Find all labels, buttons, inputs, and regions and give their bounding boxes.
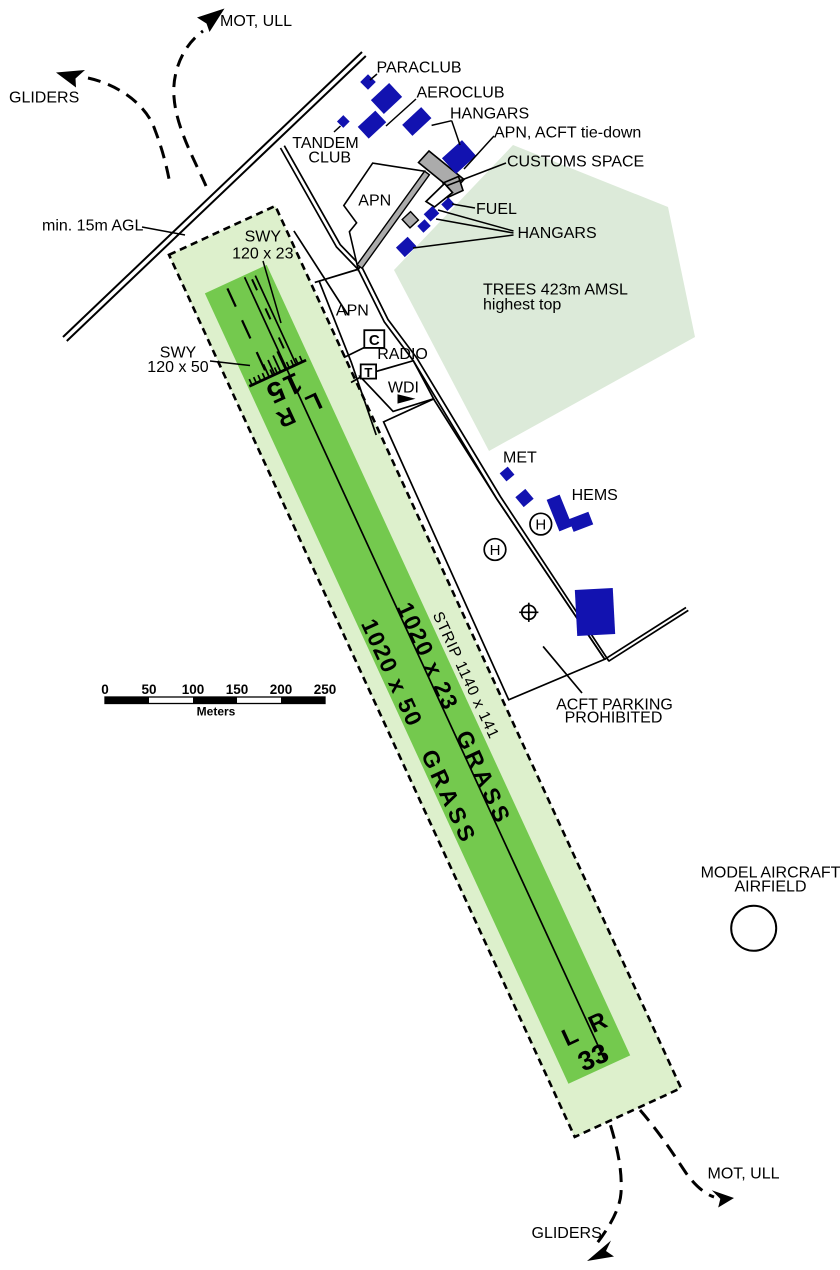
svg-text:CUSTOMS SPACE: CUSTOMS SPACE — [507, 154, 644, 171]
svg-text:H: H — [490, 542, 501, 559]
svg-text:PARACLUB: PARACLUB — [377, 60, 462, 77]
svg-text:HANGARS: HANGARS — [518, 225, 597, 242]
svg-text:APN: APN — [358, 193, 391, 210]
svg-text:AIRFIELD: AIRFIELD — [734, 879, 806, 896]
svg-text:HANGARS: HANGARS — [450, 106, 529, 123]
svg-text:RADIO: RADIO — [377, 346, 428, 363]
svg-text:120 x 23: 120 x 23 — [232, 246, 293, 263]
svg-text:GLIDERS: GLIDERS — [9, 90, 79, 107]
svg-text:FUEL: FUEL — [476, 201, 517, 218]
svg-text:highest top: highest top — [483, 297, 561, 314]
svg-text:MOT, ULL: MOT, ULL — [708, 1166, 780, 1183]
svg-text:0: 0 — [101, 682, 109, 697]
svg-text:PROHIBITED: PROHIBITED — [565, 710, 663, 727]
svg-text:CLUB: CLUB — [308, 150, 351, 167]
svg-text:H: H — [535, 517, 546, 534]
svg-text:120 x 50: 120 x 50 — [147, 359, 208, 376]
svg-text:AEROCLUB: AEROCLUB — [417, 85, 505, 102]
svg-text:100: 100 — [182, 682, 205, 697]
svg-text:GLIDERS: GLIDERS — [532, 1225, 602, 1242]
svg-text:APN: APN — [336, 303, 369, 320]
svg-text:WDI: WDI — [388, 380, 419, 397]
svg-text:50: 50 — [141, 682, 156, 697]
svg-text:150: 150 — [226, 682, 249, 697]
svg-text:MET: MET — [503, 450, 537, 467]
svg-text:min. 15m AGL: min. 15m AGL — [42, 218, 143, 235]
svg-text:MOT, ULL: MOT, ULL — [220, 13, 292, 30]
svg-text:APN, ACFT tie-down: APN, ACFT tie-down — [494, 125, 641, 142]
svg-text:SWY: SWY — [245, 229, 282, 246]
svg-text:250: 250 — [314, 682, 337, 697]
svg-text:Meters: Meters — [197, 705, 236, 719]
svg-text:HEMS: HEMS — [572, 487, 618, 504]
svg-text:T: T — [364, 365, 372, 380]
svg-text:200: 200 — [270, 682, 293, 697]
